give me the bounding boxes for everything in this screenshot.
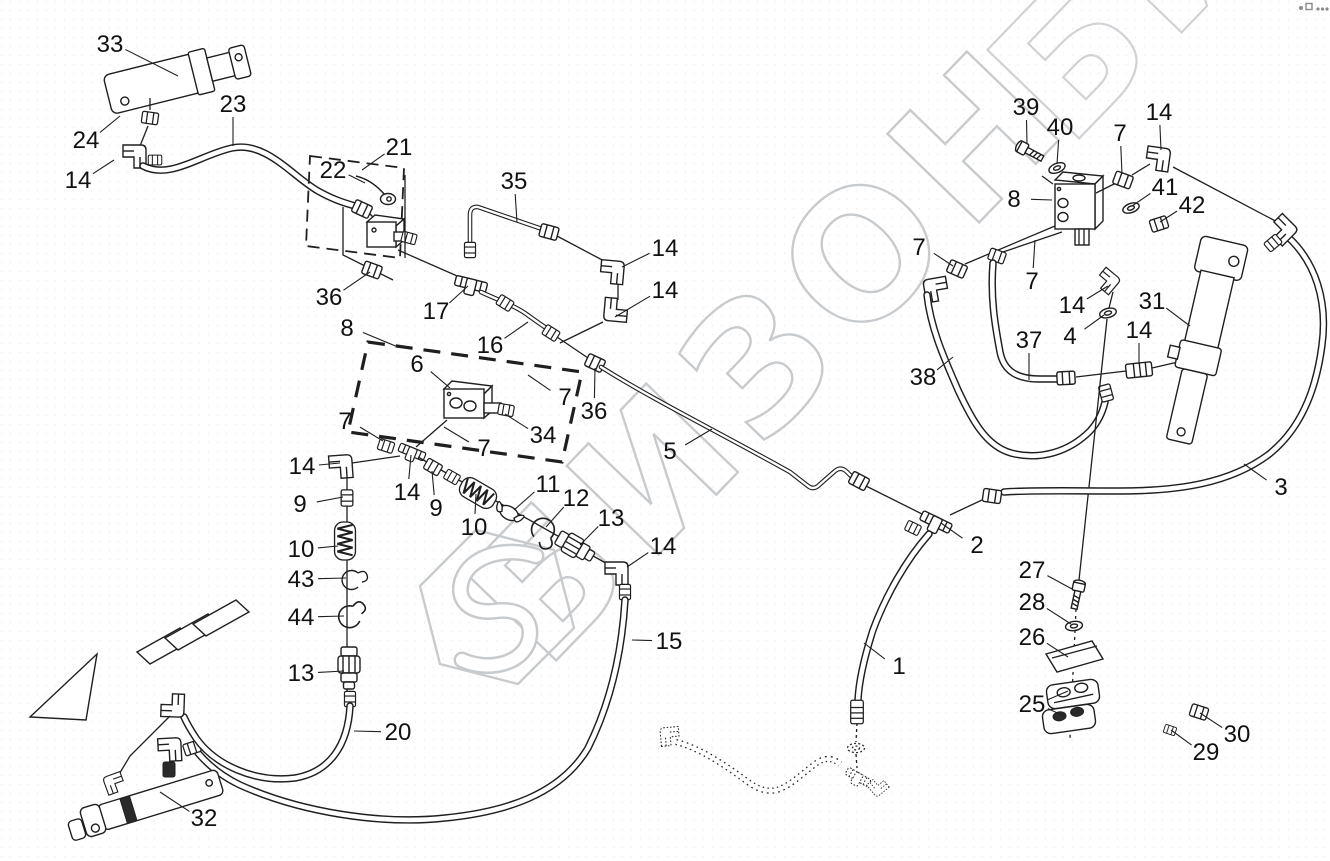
callout-14: 14 bbox=[1126, 317, 1153, 344]
callout-32: 32 bbox=[191, 805, 218, 832]
callout-28: 28 bbox=[1019, 589, 1046, 616]
callout-24: 24 bbox=[73, 127, 100, 154]
callout-17: 17 bbox=[423, 298, 450, 325]
parts-diagram-page: БИЗОН БИЗОН bbox=[0, 0, 1330, 861]
callout-44: 44 bbox=[288, 604, 315, 631]
callout-35: 35 bbox=[501, 168, 528, 195]
callout-15: 15 bbox=[656, 628, 683, 655]
callout-26: 26 bbox=[1019, 624, 1046, 651]
nut bbox=[982, 488, 1002, 503]
callout-4: 4 bbox=[1063, 323, 1076, 350]
callout-7: 7 bbox=[477, 435, 490, 462]
callout-16: 16 bbox=[477, 332, 504, 359]
callout-33: 33 bbox=[97, 31, 124, 58]
callout-20: 20 bbox=[385, 719, 412, 746]
callout-14: 14 bbox=[650, 533, 677, 560]
hidden-washer bbox=[848, 743, 865, 752]
callout-11: 11 bbox=[536, 471, 561, 498]
callout-12: 12 bbox=[563, 485, 590, 512]
nut bbox=[851, 700, 864, 723]
callout-7: 7 bbox=[1113, 120, 1126, 147]
callout-14: 14 bbox=[652, 235, 679, 262]
fitting-9 bbox=[341, 490, 353, 506]
spring-guard-10 bbox=[335, 522, 356, 560]
callout-14: 14 bbox=[1059, 292, 1086, 319]
callout-13: 13 bbox=[598, 505, 625, 532]
callout-5: 5 bbox=[663, 438, 676, 465]
callout-38: 38 bbox=[910, 364, 937, 391]
callout-41: 41 bbox=[1152, 174, 1179, 201]
nut bbox=[1057, 371, 1076, 385]
callout-25: 25 bbox=[1019, 691, 1046, 718]
union-14 bbox=[1125, 362, 1152, 379]
callout-37: 37 bbox=[1016, 327, 1043, 354]
callout-42: 42 bbox=[1179, 192, 1206, 219]
callout-6: 6 bbox=[410, 351, 423, 378]
callout-23: 23 bbox=[220, 91, 247, 118]
callout-14: 14 bbox=[289, 453, 316, 480]
callout-39: 39 bbox=[1013, 94, 1040, 121]
fitting bbox=[163, 762, 175, 777]
callout-27: 27 bbox=[1019, 557, 1046, 584]
callout-36: 36 bbox=[581, 398, 608, 425]
callout-43: 43 bbox=[288, 566, 315, 593]
callout-9: 9 bbox=[429, 495, 442, 522]
callout-10: 10 bbox=[288, 536, 315, 563]
callout-1: 1 bbox=[892, 653, 905, 680]
nut bbox=[464, 242, 475, 257]
fitting-24 bbox=[141, 111, 159, 125]
callout-14: 14 bbox=[394, 479, 421, 506]
callout-9: 9 bbox=[293, 491, 306, 518]
callout-7: 7 bbox=[1025, 268, 1038, 295]
callout-7: 7 bbox=[338, 408, 351, 435]
leader-line bbox=[354, 731, 381, 732]
callout-21: 21 bbox=[386, 134, 413, 161]
callout-13: 13 bbox=[288, 660, 315, 687]
nut bbox=[148, 155, 162, 165]
leader-line bbox=[318, 578, 346, 579]
leader-line bbox=[632, 640, 652, 641]
hydraulic-parts-diagram: БИЗОН БИЗОН bbox=[0, 0, 1330, 861]
callout-10: 10 bbox=[461, 514, 488, 541]
callout-31: 31 bbox=[1139, 288, 1166, 315]
callout-29: 29 bbox=[1193, 739, 1220, 766]
leader-line bbox=[1027, 120, 1028, 144]
callout-36: 36 bbox=[316, 284, 343, 311]
callout-3: 3 bbox=[1274, 474, 1287, 501]
callout-22: 22 bbox=[320, 157, 347, 184]
callout-7: 7 bbox=[558, 384, 571, 411]
leader-line bbox=[594, 368, 595, 398]
callout-14: 14 bbox=[652, 277, 679, 304]
callout-8: 8 bbox=[340, 315, 353, 342]
callout-34: 34 bbox=[530, 422, 557, 449]
callout-40: 40 bbox=[1047, 114, 1074, 141]
callout-7: 7 bbox=[912, 234, 925, 261]
leader-line bbox=[318, 616, 344, 617]
callout-8: 8 bbox=[1007, 186, 1020, 213]
callout-2: 2 bbox=[970, 532, 983, 559]
leader-line bbox=[1031, 199, 1052, 200]
callout-14: 14 bbox=[65, 167, 92, 194]
callout-30: 30 bbox=[1224, 721, 1251, 748]
callout-14: 14 bbox=[1146, 99, 1173, 126]
